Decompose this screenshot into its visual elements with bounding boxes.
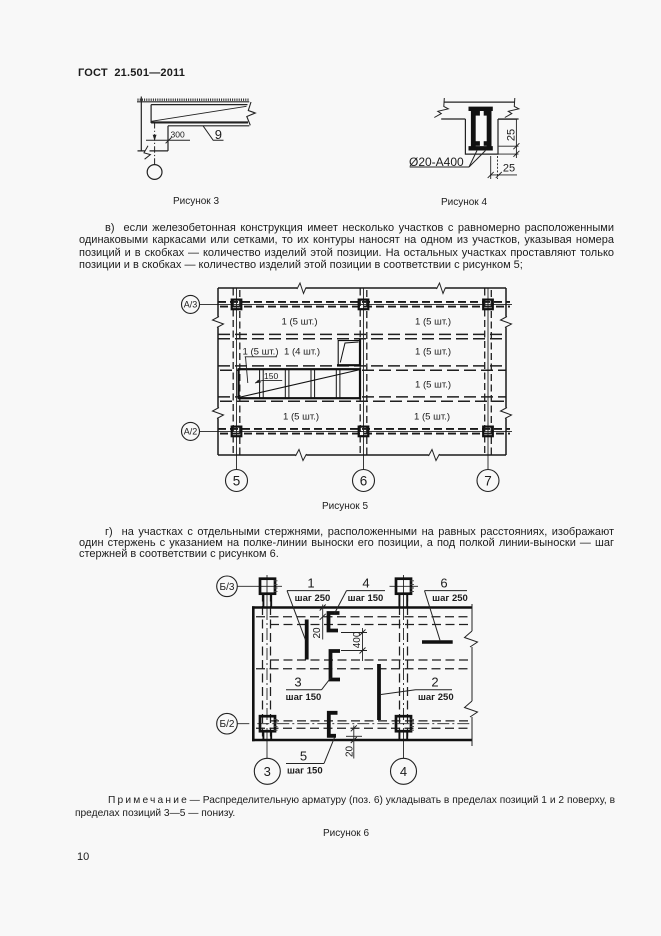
svg-text:5: 5 (300, 748, 307, 763)
svg-text:Б/2: Б/2 (220, 719, 235, 730)
svg-text:4: 4 (362, 576, 369, 591)
svg-text:1 (5 шт.): 1 (5 шт.) (281, 316, 317, 327)
svg-text:5: 5 (233, 473, 241, 488)
svg-text:20: 20 (344, 745, 355, 757)
svg-text:А/2: А/2 (184, 427, 198, 437)
svg-text:6: 6 (440, 576, 447, 591)
svg-text:3: 3 (264, 764, 271, 779)
svg-text:25: 25 (506, 129, 518, 141)
svg-text:1: 1 (307, 576, 314, 591)
svg-text:3: 3 (294, 675, 301, 690)
svg-text:2: 2 (431, 675, 438, 690)
svg-text:6: 6 (360, 473, 368, 488)
svg-text:1 (5 шт.): 1 (5 шт.) (414, 411, 450, 422)
svg-text:300: 300 (171, 130, 185, 140)
svg-text:1 (5 шт.): 1 (5 шт.) (283, 411, 319, 422)
svg-text:7: 7 (484, 473, 492, 488)
svg-text:шаг 150: шаг 150 (287, 766, 323, 777)
svg-text:А/3: А/3 (184, 300, 198, 310)
svg-text:Б/3: Б/3 (220, 582, 235, 593)
svg-text:шаг 150: шаг 150 (348, 593, 384, 604)
svg-text:1 (5 шт.): 1 (5 шт.) (415, 380, 451, 391)
svg-text:1 (5 шт.): 1 (5 шт.) (415, 347, 451, 358)
svg-text:шаг 250: шаг 250 (295, 593, 331, 604)
svg-text:400: 400 (352, 631, 363, 648)
svg-text:Ø20-А400: Ø20-А400 (409, 155, 464, 169)
svg-text:1 (5 шт.): 1 (5 шт.) (242, 347, 278, 358)
svg-text:шаг 150: шаг 150 (286, 692, 322, 703)
svg-text:20: 20 (312, 627, 323, 639)
svg-text:25: 25 (503, 163, 515, 175)
svg-text:шаг 250: шаг 250 (418, 692, 454, 703)
svg-text:4: 4 (400, 764, 407, 779)
svg-text:1 (5 шт.): 1 (5 шт.) (415, 316, 451, 327)
svg-text:9: 9 (215, 127, 222, 142)
svg-text:150: 150 (264, 371, 278, 381)
svg-text:шаг 250: шаг 250 (432, 593, 468, 604)
svg-text:1 (4 шт.): 1 (4 шт.) (284, 347, 320, 358)
